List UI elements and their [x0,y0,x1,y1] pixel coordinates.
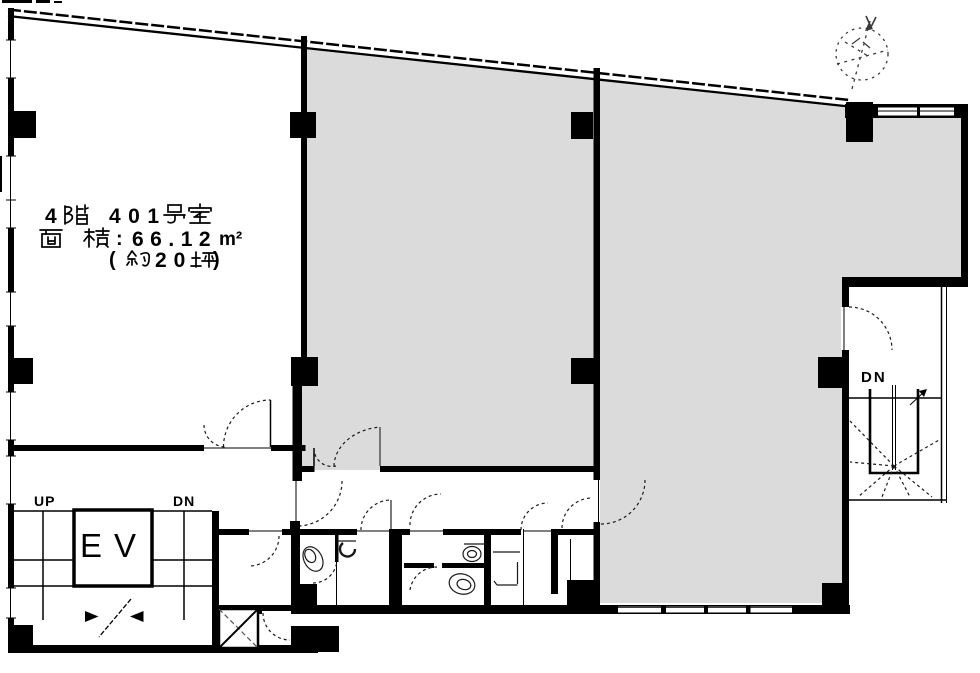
svg-text:66.12: 66.12 [132,228,217,251]
svg-text:20: 20 [155,249,192,272]
svg-text:m²: m² [219,229,242,250]
svg-text::: : [116,228,123,250]
svg-text:DN: DN [173,493,195,509]
svg-text:DN: DN [861,369,887,386]
svg-text:401: 401 [109,205,167,228]
svg-text:EV: EV [80,527,148,564]
svg-text:4: 4 [45,205,57,228]
svg-text:(: ( [109,249,116,271]
svg-text:UP: UP [34,493,55,509]
